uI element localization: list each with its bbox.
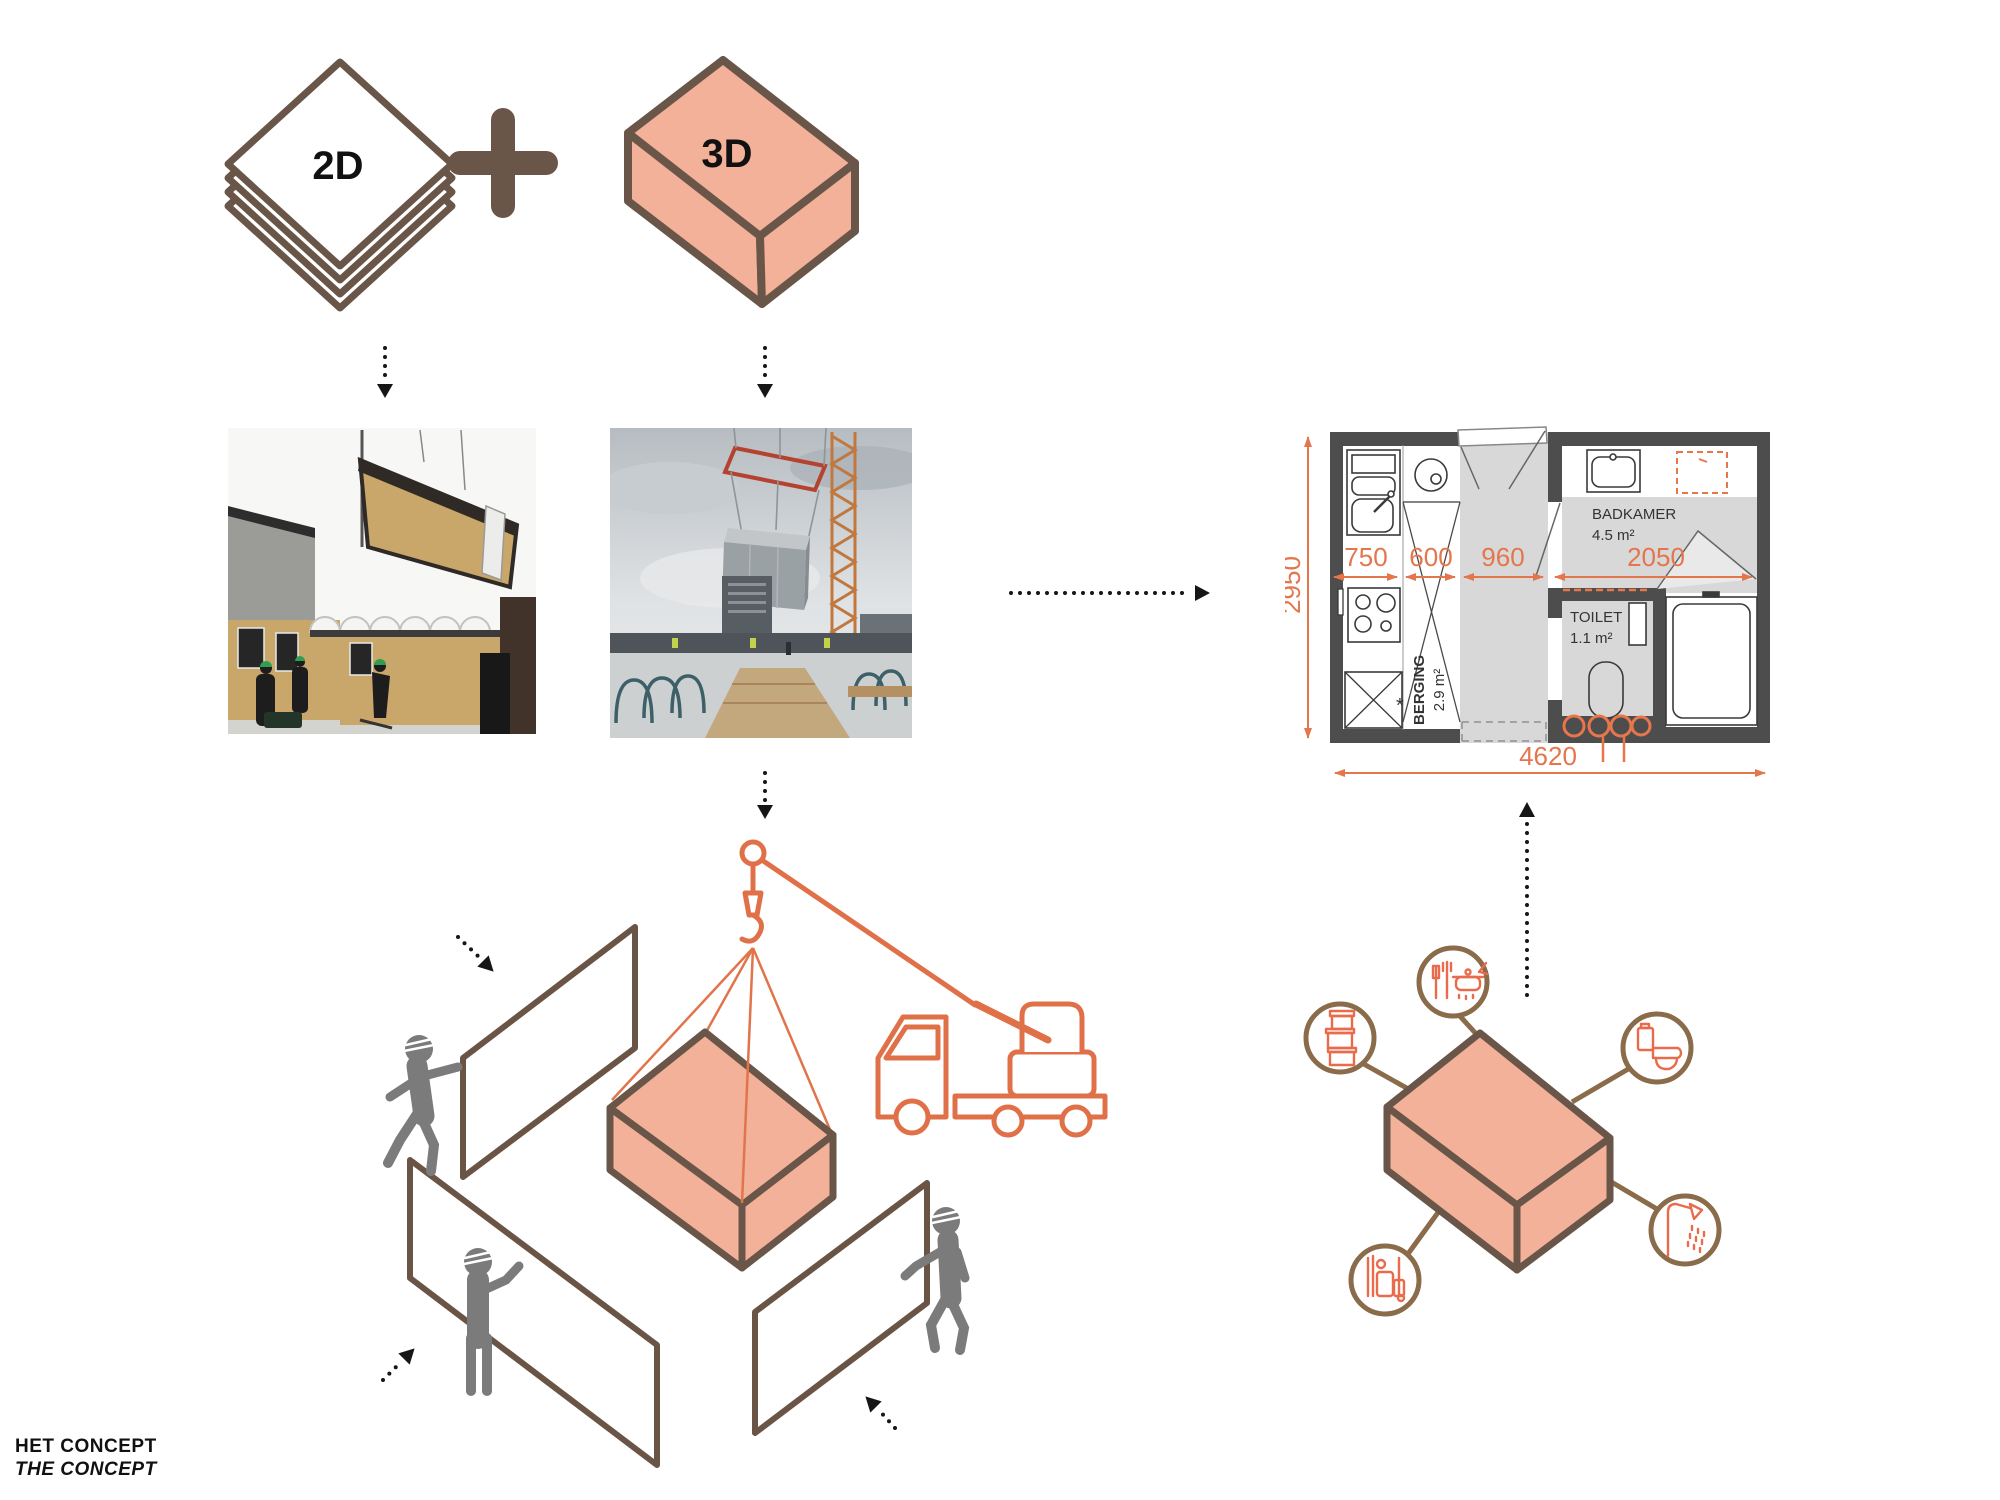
- asterisk-mark: *: [1396, 695, 1404, 717]
- arrow-down-3d-icon: [757, 348, 773, 398]
- page-title-en: THE CONCEPT: [15, 1459, 157, 1481]
- dim-750: 750: [1344, 542, 1387, 572]
- formula-2d-plus-3d: 2D 3D: [180, 30, 900, 410]
- page-title-nl: HET CONCEPT: [15, 1436, 157, 1458]
- distant-worker: [786, 642, 791, 655]
- concept-slide: 2D 3D: [0, 0, 2000, 1500]
- arrow-down-to-assembly-icon: [757, 773, 773, 819]
- label-toilet-area: 1.1 m²: [1570, 630, 1613, 647]
- label-berging-area: 2.9 m²: [1431, 669, 1448, 712]
- label-berging: BERGING: [1411, 655, 1428, 725]
- floor-plan: *: [1285, 420, 1800, 795]
- dim-height: 2950: [1285, 556, 1306, 614]
- crane-truck-icon: [878, 1004, 1105, 1135]
- dim-960: 960: [1481, 542, 1524, 572]
- wheelbarrow: [264, 712, 302, 728]
- label-badkamer: BADKAMER: [1592, 506, 1676, 523]
- label-badkamer-area: 4.5 m²: [1592, 527, 1635, 544]
- dim-600: 600: [1409, 542, 1452, 572]
- crane-hook-icon: [742, 842, 975, 1005]
- label-toilet: TOILET: [1570, 609, 1622, 626]
- arrow-up-to-plan-icon: [1519, 802, 1535, 995]
- dim-width: 4620: [1519, 741, 1577, 771]
- arrow-right-to-plan-icon: [1005, 580, 1215, 606]
- module-features-diagram: [1290, 780, 1740, 1350]
- skyline-band: [610, 633, 912, 653]
- dim-2050: 2050: [1627, 542, 1685, 572]
- worker-left: [388, 1035, 458, 1171]
- label-3d: 3D: [701, 132, 752, 176]
- 3d-box-icon: [628, 60, 855, 304]
- arrow-down-2d-icon: [377, 348, 393, 398]
- panel-bottom-left: [410, 1160, 657, 1465]
- photo-3d-module-crane: [610, 428, 912, 738]
- label-2d: 2D: [312, 144, 363, 188]
- plus-icon: [460, 120, 546, 206]
- photo-2d-panels-construction: [228, 428, 536, 734]
- assembly-diagram: [360, 760, 1120, 1500]
